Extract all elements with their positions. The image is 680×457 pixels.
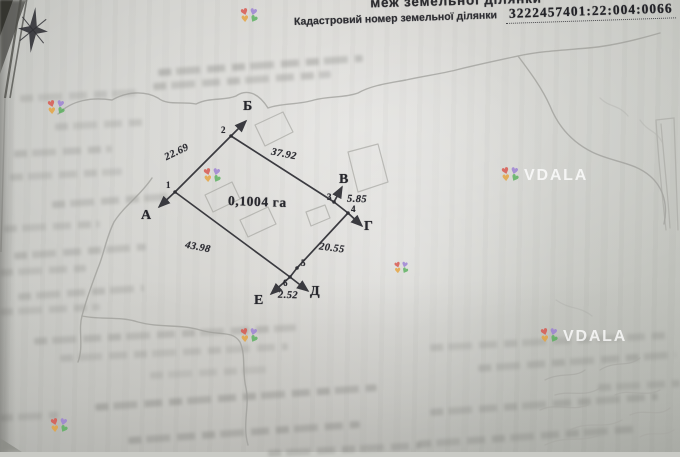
vdala-watermark: ♥♥♥♥ [241,9,258,25]
direction-arrow-a [159,192,175,207]
vdala-watermark: ♥♥♥♥ [393,261,410,277]
vdala-logo-icon: ♥♥♥♥ [502,168,519,184]
direction-arrow-g [348,213,362,226]
direction-arrow-b [231,121,246,136]
direction-arrow-d [290,277,308,291]
cadastral-number-label: Кадастровий номер земельної ділянки [294,9,497,28]
vdala-watermark: ♥♥♥♥ [241,329,258,345]
vertex-label-4: 4 [351,204,356,214]
scanned-cadastral-plan: { "document": { "title_fragment": "меж з… [0,0,680,452]
direction-arrow-v [334,187,342,202]
vdala-watermark-text: VDALA [563,328,627,346]
neighbor-label-e: Е [254,293,263,309]
neighbor-label-d: Д [310,284,320,300]
vertex-label-3: 3 [327,192,332,202]
vdala-logo-icon: ♥♥♥♥ [48,101,65,117]
neighbor-label-b: Б [243,99,252,115]
vertex-label-1: 1 [166,180,171,190]
vdala-logo-icon: ♥♥♥♥ [241,9,258,25]
edge-length-5-6: 2.52 [278,290,298,302]
vdala-watermark: ♥♥♥♥ [48,101,65,117]
neighbor-label-a: А [141,208,151,224]
vdala-watermark-text: VDALA [524,167,588,185]
plot-area-label: 0,1004 га [228,193,287,211]
neighbor-label-v: В [339,172,348,188]
vdala-logo-icon: ♥♥♥♥ [395,262,409,275]
neighbor-label-g: Г [364,219,373,235]
vdala-logo-icon: ♥♥♥♥ [541,329,558,345]
vertex-label-2: 2 [221,125,226,135]
vdala-logo-icon: ♥♥♥♥ [241,329,258,345]
vertex-label-6: 6 [283,278,288,288]
vdala-watermark: ♥♥♥♥ [51,419,68,435]
vdala-watermark: ♥♥♥♥ VDALA [541,328,627,346]
vdala-watermark: ♥♥♥♥ VDALA [502,167,588,185]
vertex-label-5: 5 [301,258,306,268]
vdala-watermark: ♥♥♥♥ [204,169,221,185]
vdala-logo-icon: ♥♥♥♥ [204,169,221,185]
vdala-logo-icon: ♥♥♥♥ [51,419,68,435]
plot-drawing [0,0,680,452]
edge-length-3-4: 5.85 [347,194,367,206]
